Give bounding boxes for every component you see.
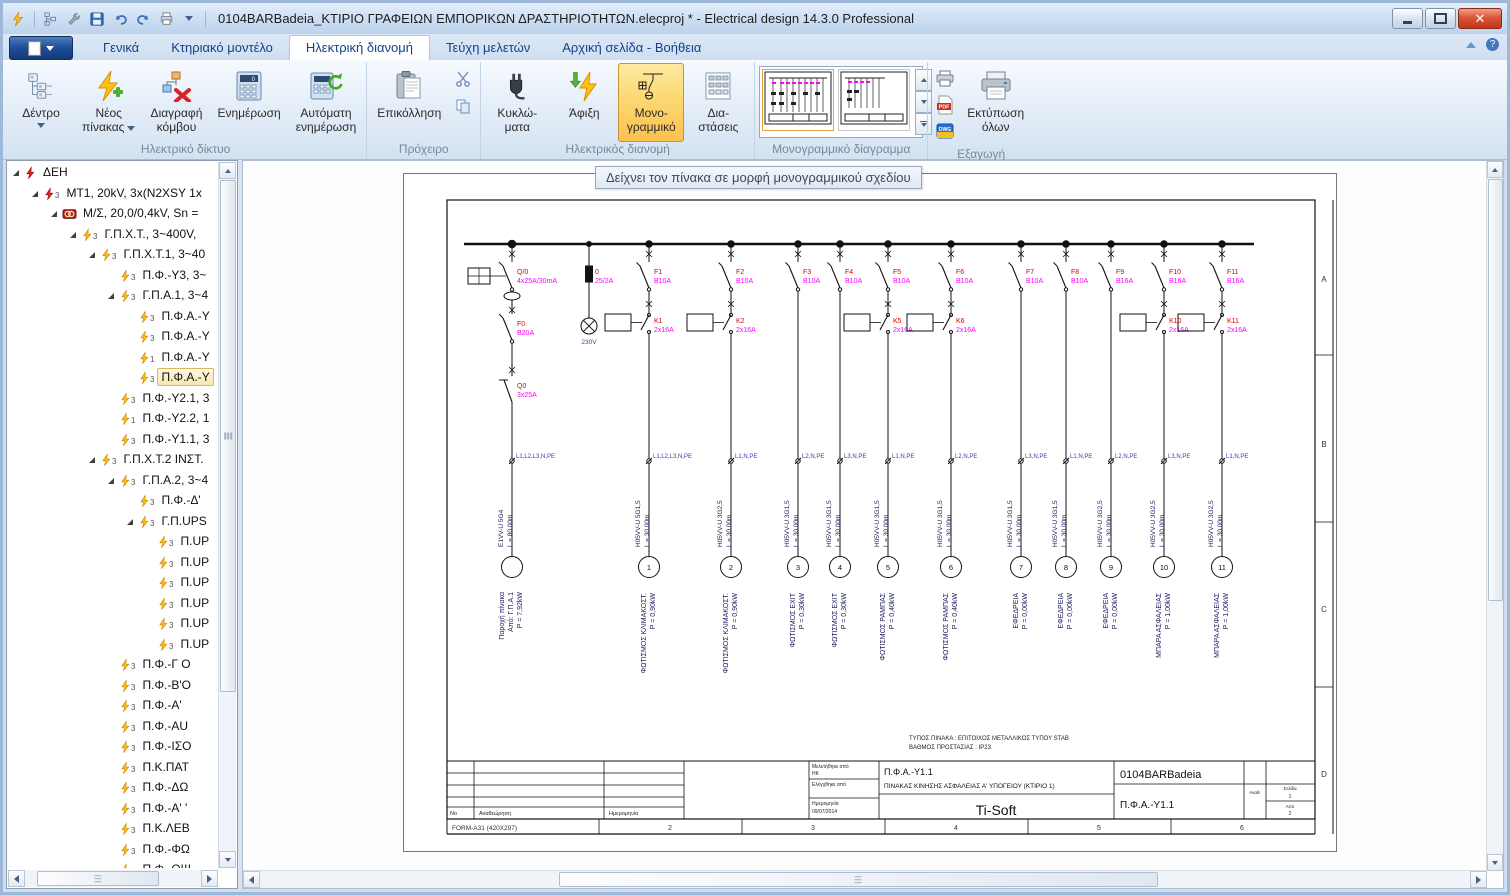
svg-text:11: 11 [1218, 563, 1226, 572]
expand-triangle-icon[interactable] [89, 247, 100, 261]
tree-item-label: Π.Φ.-Α' [138, 696, 185, 714]
tree-item[interactable]: 3Π.Φ.-ΙΣΟ [9, 736, 218, 757]
tree-item-label: Π.Φ.-Υ2.2, 1 [138, 409, 213, 427]
tree-item[interactable]: 3Π.Κ.ΠΑΤ [9, 757, 218, 778]
export-dwg-icon[interactable]: DWG [933, 119, 957, 143]
svg-text:2: 2 [1289, 811, 1292, 817]
bolt-yellow-icon: 3 [138, 371, 155, 385]
svg-text:L1,N,PE: L1,N,PE [735, 454, 757, 460]
svg-text:Ti-Soft: Ti-Soft [976, 802, 1017, 818]
tree-item[interactable]: 3Π.Φ.-ΟΨ [9, 859, 218, 868]
tree-item-label: Π.Κ.ΛΕΒ [138, 819, 193, 837]
bolt-yellow-icon: 3 [119, 720, 136, 734]
save-icon[interactable] [88, 10, 106, 28]
new-panel-button[interactable]: Νέοςπίνακας [75, 63, 142, 142]
svg-text:F2: F2 [736, 269, 744, 276]
svg-text:L1,N,PE: L1,N,PE [1226, 454, 1248, 460]
svg-text:P = 0,30kW: P = 0,30kW [799, 593, 806, 630]
svg-text:P = 7,92kW: P = 7,92kW [517, 592, 524, 629]
divider [205, 11, 206, 27]
expand-triangle-icon[interactable] [108, 473, 119, 487]
tree-button[interactable]: Δέντρο [8, 63, 74, 142]
minimize-button[interactable] [1392, 8, 1423, 29]
svg-text:2x16A: 2x16A [1227, 327, 1247, 334]
svg-text:H05VV-U 3G1,5: H05VV-U 3G1,5 [784, 500, 791, 547]
tree-item[interactable]: 3Γ.Π.Α.2, 3~4 [9, 470, 218, 491]
svg-text:K2: K2 [736, 318, 745, 325]
svg-text:L = 30,00m: L = 30,00m [946, 515, 953, 547]
tree-item[interactable]: 3Π.Κ.ΛΕΒ [9, 818, 218, 839]
svg-text:B16A: B16A [1227, 278, 1244, 285]
tree-item[interactable]: 3Π.Φ.-Α' [9, 695, 218, 716]
tree-icon[interactable] [42, 10, 60, 28]
svg-text:Ημερομηνία: Ημερομηνία [609, 811, 639, 817]
paste-button[interactable]: Επικόλληση [370, 63, 448, 142]
single-line-diagram: ABCDFORM-A31 (420X297)23456ΤΥΠΟΣ ΠΙΝΑΚΑ … [404, 174, 1334, 849]
bolt-yellow-icon: 3 [119, 863, 136, 868]
tree-item[interactable]: 3Π.UP [9, 634, 218, 655]
main-area: ΔΕΗ3MT1, 20kV, 3x(N2XSY 1xΜ/Σ, 20,0/0,4k… [6, 160, 1504, 889]
bolt-yellow-icon: 3 [119, 474, 136, 488]
svg-text:10: 10 [1160, 563, 1168, 572]
svg-text:0104BARBadeia: 0104BARBadeia [1120, 769, 1202, 781]
svg-text:B20A: B20A [517, 330, 534, 337]
svg-text:ΜΠΑΡΑ ΑΣΦΑΛΕΙΑΣ: ΜΠΑΡΑ ΑΣΦΑΛΕΙΑΣ [1214, 592, 1221, 658]
svg-text:F9: F9 [1116, 269, 1124, 276]
tree-item[interactable]: 3Π.Φ.Α.-Υ [9, 306, 218, 327]
plug-icon [502, 68, 532, 104]
canvas-vertical-scrollbar[interactable] [1486, 161, 1503, 871]
svg-text:P = 0,90kW: P = 0,90kW [732, 593, 739, 630]
diagram-gallery [759, 66, 923, 138]
svg-text:Π.Φ.Α.-Υ1.1: Π.Φ.Α.-Υ1.1 [884, 767, 933, 777]
svg-text:L = 30,00m: L = 30,00m [1106, 515, 1113, 547]
svg-text:L = 30,00m: L = 30,00m [644, 515, 651, 547]
tree-item-label: Π.UP [176, 573, 213, 591]
tree-item-label: Π.UP [176, 553, 213, 571]
bolt-yellow-icon: 3 [119, 699, 136, 713]
tree-item[interactable]: 1Π.Φ.Α.-Υ [9, 347, 218, 368]
clipboard-icon [394, 68, 424, 104]
app-icon [9, 10, 27, 28]
new-panel-bolt-icon [93, 68, 125, 104]
group-electric-distribution: Κυκλώ-ματα Άφιξη Μονο-γραμμικό Δια-στάσε… [480, 62, 754, 159]
bolt-yellow-icon: 3 [157, 576, 174, 590]
svg-text:F6: F6 [956, 269, 964, 276]
tree-item[interactable]: 3Π.Φ.-Υ3, 3~ [9, 265, 218, 286]
network-tree: ΔΕΗ3MT1, 20kV, 3x(N2XSY 1xΜ/Σ, 20,0/0,4k… [9, 162, 218, 868]
close-icon: ✕ [1475, 12, 1486, 25]
group-export: PDF DWG Εκτύπωσηόλων Εξαγωγή [927, 62, 1034, 159]
svg-text:Ημερομηνία: Ημερομηνία [812, 801, 839, 807]
help-icon[interactable]: ? [1486, 38, 1499, 51]
maximize-icon [1434, 13, 1447, 24]
tree-item[interactable]: 3Π.Φ.-Β'Ο [9, 675, 218, 696]
svg-text:Παροχή πίνακα: Παροχή πίνακα [498, 592, 506, 640]
single-line-button[interactable]: Μονο-γραμμικό [618, 63, 684, 142]
svg-text:H05VV-U 3G1,5: H05VV-U 3G1,5 [937, 500, 944, 547]
tree-item-label: Γ.Π.UPS [157, 512, 210, 530]
canvas-horizontal-scrollbar[interactable] [243, 870, 1487, 888]
svg-text:L = 30,00m: L = 30,00m [883, 515, 890, 547]
tree-item-label: Π.UP [176, 614, 213, 632]
group-label: Ηλεκτρικός διανομή [484, 142, 751, 159]
redo-icon[interactable] [134, 10, 152, 28]
tree-item[interactable]: Μ/Σ, 20,0/0,4kV, Sn = [9, 203, 218, 224]
group-label: Ηλεκτρικό δίκτυο [8, 142, 363, 159]
ribbon-tab-row: Γενικά Κτηριακό μοντέλο Ηλεκτρική διανομ… [3, 34, 1507, 60]
tree-item[interactable]: 3Γ.Π.Α.1, 3~4 [9, 285, 218, 306]
tree-item[interactable]: 3Γ.Π.Χ.Τ.2 ΙΝΣΤ. [9, 449, 218, 470]
svg-text:B10A: B10A [803, 278, 820, 285]
svg-text:P = 1,00kW: P = 1,00kW [1223, 593, 1230, 630]
maximize-button[interactable] [1425, 8, 1456, 29]
svg-text:P = 0,00kW: P = 0,00kW [1067, 593, 1074, 630]
tree-item[interactable]: 3Π.Φ.-Υ2.1, 3 [9, 388, 218, 409]
tree-item[interactable]: ΔΕΗ [9, 162, 218, 183]
svg-text:2: 2 [668, 825, 672, 832]
svg-text:B10A: B10A [736, 278, 753, 285]
svg-text:7: 7 [1019, 563, 1023, 572]
bolt-red-icon: 3 [43, 187, 60, 201]
svg-text:Από: Από [1286, 803, 1295, 809]
svg-text:L = 30,00m: L = 30,00m [1016, 515, 1023, 547]
tree-item[interactable]: 3Π.Φ.Α.-Υ [9, 367, 218, 388]
svg-text:F3: F3 [803, 269, 811, 276]
window-title: 0104BARBadeia_ΚΤΙΡΙΟ ΓΡΑΦΕΙΩΝ ΕΜΠΟΡΙΚΩΝ … [218, 11, 914, 26]
svg-text:2x16A: 2x16A [654, 327, 674, 334]
svg-text:ΦΩΤΙΣΜΟΣ ΚΛΙΜΑΚΟΣΤ.: ΦΩΤΙΣΜΟΣ ΚΛΙΜΑΚΟΣΤ. [641, 593, 648, 673]
dimensions-button[interactable]: Δια-στάσεις [685, 63, 751, 142]
auto-update-button[interactable]: Αυτόματηενημέρωση [289, 63, 364, 142]
print-small-icon[interactable] [933, 67, 957, 91]
bolt-yellow-icon: 3 [157, 535, 174, 549]
svg-text:25/2A: 25/2A [595, 278, 614, 285]
tree-item-label: MT1, 20kV, 3x(N2XSY 1x [62, 184, 205, 202]
tree-item[interactable]: 3Π.Φ.-ΦΩ [9, 839, 218, 860]
tab-ktiriako-montelo[interactable]: Κτηριακό μοντέλο [155, 36, 289, 60]
calculator-refresh-icon [309, 68, 343, 104]
tree-item-label: Π.Φ.Α.-Υ [157, 368, 213, 386]
calculator-icon: 0 [234, 68, 264, 104]
svg-text:F8: F8 [1071, 269, 1079, 276]
svg-text:DWG: DWG [939, 127, 951, 133]
tree-item-label: Π.Φ.-ΔΩ [138, 778, 192, 796]
tree-item[interactable]: 3Π.UP [9, 572, 218, 593]
svg-text:H05VV-U 3G1,5: H05VV-U 3G1,5 [1052, 500, 1059, 547]
svg-text:230V: 230V [581, 339, 597, 346]
tree-item-label: Γ.Π.Α.1, 3~4 [138, 286, 212, 304]
svg-text:L3,N,PE: L3,N,PE [844, 454, 866, 460]
chevron-down-icon [127, 126, 135, 131]
svg-text:ΕΦΕΔΡΕΙΑ: ΕΦΕΔΡΕΙΑ [1013, 593, 1020, 629]
divider [34, 11, 35, 27]
qat-dropdown-icon[interactable] [180, 10, 198, 28]
svg-text:K6: K6 [956, 318, 965, 325]
svg-text:4: 4 [954, 825, 958, 832]
expand-triangle-icon[interactable] [108, 288, 119, 302]
svg-text:Σελίδα: Σελίδα [1283, 786, 1297, 791]
tree-item[interactable]: 3Π.Φ.-Γ Ο [9, 654, 218, 675]
bolt-yellow-icon: 3 [119, 433, 136, 447]
svg-text:Π.Φ.Α.-Υ1.1: Π.Φ.Α.-Υ1.1 [1120, 800, 1175, 811]
tree-item-label: Γ.Π.Χ.Τ.2 ΙΝΣΤ. [119, 450, 207, 468]
tooltip: Δείχνει τον πίνακα σε μορφή μονογραμμικο… [595, 166, 922, 189]
tree-item[interactable]: 3Γ.Π.Χ.Τ., 3~400V, [9, 224, 218, 245]
svg-text:H05VV-U 3G1,5: H05VV-U 3G1,5 [874, 500, 881, 547]
svg-text:H05VV-U 3G2,5: H05VV-U 3G2,5 [717, 500, 724, 547]
svg-text:4x25A/30mA: 4x25A/30mA [517, 278, 557, 285]
svg-text:F7: F7 [1026, 269, 1034, 276]
drawing-canvas: Δείχνει τον πίνακα σε μορφή μονογραμμικο… [242, 160, 1504, 889]
quick-access-toolbar [9, 10, 208, 28]
tab-ilektriki-dianomi[interactable]: Ηλεκτρική διανομή [289, 35, 430, 60]
svg-text:ΠΙΝΑΚΑΣ ΚΙΝΗΣΗΣ ΑΣΦΑΛΕΙΑΣ Α' Υ: ΠΙΝΑΚΑΣ ΚΙΝΗΣΗΣ ΑΣΦΑΛΕΙΑΣ Α' ΥΠΟΓΕΙΟΥ (Κ… [884, 783, 1055, 790]
svg-text:P = 0,40kW: P = 0,40kW [952, 593, 959, 630]
tree-item[interactable]: 3Γ.Π.Χ.Τ.1, 3~40 [9, 244, 218, 265]
diagram-thumbnail-1[interactable] [762, 69, 834, 131]
expand-triangle-icon[interactable] [51, 206, 62, 220]
settings-wrench-icon[interactable] [65, 10, 83, 28]
tab-row-right: ? [1466, 38, 1499, 51]
svg-text:L1,N,PE: L1,N,PE [1070, 454, 1092, 460]
bolt-yellow-icon: 3 [138, 515, 155, 529]
svg-text:No: No [450, 811, 457, 817]
window-controls: ✕ [1390, 8, 1502, 29]
tree-item-label: Π.Φ.-AU [138, 717, 192, 735]
export-pdf-icon[interactable]: PDF [933, 93, 957, 117]
tree-item-label: Π.Φ.-Β'Ο [138, 676, 195, 694]
bolt-red-icon [24, 166, 37, 180]
svg-text:E1VV-U 5G4: E1VV-U 5G4 [498, 509, 505, 547]
svg-text:L = 30,00m: L = 30,00m [835, 515, 842, 547]
tree-item[interactable]: 3Π.UP [9, 613, 218, 634]
application-menu-icon [28, 41, 41, 56]
print-icon[interactable] [157, 10, 175, 28]
svg-text:B10A: B10A [1026, 278, 1043, 285]
tree-item-label: Π.Φ.Α.-Υ [157, 327, 213, 345]
tree-item-label: Π.Φ.-ΟΨ [138, 860, 194, 868]
svg-text:09/07/2014: 09/07/2014 [812, 809, 837, 815]
tree-horizontal-scrollbar[interactable] [8, 870, 218, 887]
svg-text:L1,N,PE: L1,N,PE [892, 454, 914, 460]
tree-diagram-icon [26, 68, 56, 104]
bolt-yellow-icon: 3 [119, 802, 136, 816]
tree-item[interactable]: 3Π.Φ.-Υ1.1, 3 [9, 429, 218, 450]
expand-triangle-icon[interactable] [127, 514, 138, 528]
bolt-yellow-icon: 3 [157, 556, 174, 570]
copy-icon[interactable] [451, 94, 475, 118]
bolt-yellow-icon: 3 [157, 638, 174, 652]
svg-text:2x16A: 2x16A [956, 327, 976, 334]
svg-text:P = 0,00kW: P = 0,00kW [1022, 593, 1029, 630]
tree-item[interactable]: 3Π.UP [9, 552, 218, 573]
svg-text:Αναθεώρηση: Αναθεώρηση [479, 810, 511, 817]
tree-item-label: Π.Κ.ΠΑΤ [138, 758, 192, 776]
svg-text:1: 1 [647, 563, 651, 572]
svg-text:L1,L2,L3,N,PE: L1,L2,L3,N,PE [653, 454, 692, 460]
svg-text:L2,N,PE: L2,N,PE [802, 454, 824, 460]
svg-text:L1,L2,L3,N,PE: L1,L2,L3,N,PE [516, 454, 555, 460]
bolt-yellow-icon: 3 [119, 658, 136, 672]
tree-item-label: Π.Φ.-Α' ' [138, 799, 191, 817]
bolt-yellow-icon: 3 [119, 781, 136, 795]
group-label: Πρόχειρο [370, 142, 477, 159]
printer-icon [979, 68, 1013, 104]
svg-text:ΦΩΤΙΣΜΟΣ ΡΑΜΠΑΣ: ΦΩΤΙΣΜΟΣ ΡΑΜΠΑΣ [880, 592, 887, 660]
update-button[interactable]: 0 Ενημέρωση [210, 63, 287, 142]
tree-item-label: Π.Φ.-Υ2.1, 3 [138, 389, 213, 407]
tree-item[interactable]: 3Π.Φ.-AU [9, 716, 218, 737]
svg-text:L = 30,00m: L = 30,00m [793, 515, 800, 547]
svg-text:L = 30,00m: L = 30,00m [1217, 515, 1224, 547]
svg-text:B16A: B16A [1116, 278, 1133, 285]
tree-item-label: Π.Φ.-ΙΣΟ [138, 737, 195, 755]
tree-item-label: Γ.Π.Α.2, 3~4 [138, 471, 212, 489]
tree-item[interactable]: 3Π.Φ.-Δ' [9, 490, 218, 511]
arrival-button[interactable]: Άφιξη [551, 63, 617, 142]
group-clipboard: Επικόλληση Πρόχειρο [366, 62, 480, 159]
tab-tefxi-meleton[interactable]: Τεύχη μελετών [430, 36, 546, 60]
svg-text:H05VV-U 5G1,5: H05VV-U 5G1,5 [635, 500, 642, 547]
tree-item[interactable]: 3Π.UP [9, 531, 218, 552]
svg-text:F10: F10 [1169, 269, 1181, 276]
tree-item[interactable]: 3Π.Φ.-ΔΩ [9, 777, 218, 798]
tab-arxiki-selida-voithia[interactable]: Αρχική σελίδα - Βοήθεια [546, 36, 717, 60]
app-window: 0104BARBadeia_ΚΤΙΡΙΟ ΓΡΑΦΕΙΩΝ ΕΜΠΟΡΙΚΩΝ … [0, 0, 1510, 895]
svg-text:ΕΦΕΔΡΕΙΑ: ΕΦΕΔΡΕΙΑ [1103, 593, 1110, 629]
tree-item[interactable]: 1Π.Φ.-Υ2.2, 1 [9, 408, 218, 429]
svg-text:ΒΑΘΜΟΣ ΠΡΟΣΤΑΣΙΑΣ : IP23: ΒΑΘΜΟΣ ΠΡΟΣΤΑΣΙΑΣ : IP23 [909, 745, 992, 751]
svg-text:5: 5 [1097, 825, 1101, 832]
expand-triangle-icon[interactable] [13, 165, 24, 179]
tree-item[interactable]: 3Π.Φ.-Α' ' [9, 798, 218, 819]
tree-item-label: Μ/Σ, 20,0/0,4kV, Sn = [79, 204, 202, 222]
bolt-yellow-icon: 3 [119, 392, 136, 406]
circuits-button[interactable]: Κυκλώ-ματα [484, 63, 550, 142]
tree-item[interactable]: 3Π.Φ.Α.-Υ [9, 326, 218, 347]
expand-triangle-icon[interactable] [89, 452, 100, 466]
svg-text:L3,N,PE: L3,N,PE [1025, 454, 1047, 460]
tree-item-label: Π.Φ.-ΦΩ [138, 840, 193, 858]
tree-item-label: Γ.Π.Χ.Τ., 3~400V, [100, 225, 200, 243]
svg-text:ΤΥΠΟΣ ΠΙΝΑΚΑ : ΕΠΙΤΟΙΧΟΣ ΜΕΤΑΛ: ΤΥΠΟΣ ΠΙΝΑΚΑ : ΕΠΙΤΟΙΧΟΣ ΜΕΤΑΛΛΙΚΟΣ ΤΥΠΟ… [909, 736, 1069, 742]
svg-text:6: 6 [949, 563, 953, 572]
bolt-yellow-icon: 3 [157, 597, 174, 611]
tree-item-label: Π.UP [176, 635, 213, 653]
tree-vertical-scrollbar[interactable] [218, 162, 236, 868]
drawing-viewport[interactable]: Δείχνει τον πίνακα σε μορφή μονογραμμικο… [243, 161, 1487, 871]
svg-text:0: 0 [595, 269, 599, 276]
application-menu-button[interactable] [9, 36, 73, 60]
svg-text:L = 30,00m: L = 30,00m [1061, 515, 1068, 547]
expand-triangle-icon[interactable] [70, 227, 81, 241]
bolt-yellow-icon: 3 [157, 617, 174, 631]
svg-text:L = 30,00m: L = 30,00m [1159, 515, 1166, 547]
delete-node-button[interactable]: Διαγραφήκόμβου [143, 63, 209, 142]
svg-text:F5: F5 [893, 269, 901, 276]
svg-text:L = 80,00m: L = 80,00m [507, 515, 514, 547]
svg-text:8: 8 [1064, 563, 1068, 572]
svg-text:H05VV-U 3G2,5: H05VV-U 3G2,5 [1150, 500, 1157, 547]
svg-text:F0: F0 [517, 321, 525, 328]
svg-text:3: 3 [796, 563, 800, 572]
print-all-button[interactable]: Εκτύπωσηόλων [960, 63, 1031, 147]
svg-text:ΕΦΕΔΡΕΙΑ: ΕΦΕΔΡΕΙΑ [1058, 593, 1065, 629]
close-button[interactable]: ✕ [1458, 8, 1502, 29]
undo-icon[interactable] [111, 10, 129, 28]
svg-text:3: 3 [811, 825, 815, 832]
bolt-yellow-icon: 3 [138, 330, 155, 344]
dimensions-table-icon [704, 68, 732, 104]
svg-text:3x25A: 3x25A [517, 392, 537, 399]
svg-text:PDF: PDF [939, 104, 950, 110]
svg-text:K1: K1 [654, 318, 663, 325]
tab-genika[interactable]: Γενικά [87, 36, 155, 60]
svg-text:F1: F1 [654, 269, 662, 276]
tree-item[interactable]: 3Π.UP [9, 593, 218, 614]
bolt-yellow-icon: 1 [119, 412, 136, 426]
bolt-yellow-icon: 3 [100, 453, 117, 467]
svg-text:C: C [1321, 605, 1327, 614]
bolt-yellow-icon: 3 [119, 679, 136, 693]
expand-triangle-icon[interactable] [32, 186, 43, 200]
svg-text:FORM-A31 (420X297): FORM-A31 (420X297) [452, 825, 517, 832]
svg-text:B16A: B16A [1169, 278, 1186, 285]
bolt-yellow-icon: 3 [138, 310, 155, 324]
svg-text:L2,N,PE: L2,N,PE [955, 454, 977, 460]
bolt-yellow-icon: 3 [119, 740, 136, 754]
svg-text:ΦΩΤΙΣΜΟΣ ΡΑΜΠΑΣ: ΦΩΤΙΣΜΟΣ ΡΑΜΠΑΣ [943, 592, 950, 660]
chevron-down-icon [46, 46, 54, 51]
ribbon: Δέντρο Νέοςπίνακας Διαγραφήκόμβου 0 [3, 60, 1507, 160]
arrival-bolt-icon [568, 68, 600, 104]
svg-text:K5: K5 [893, 318, 902, 325]
collapse-ribbon-icon[interactable] [1466, 42, 1476, 48]
svg-text:ΦΩΤΙΣΜΟΣ EXIT: ΦΩΤΙΣΜΟΣ EXIT [832, 592, 839, 647]
single-line-diagram-icon [635, 68, 667, 104]
svg-text:B: B [1321, 440, 1326, 449]
tree-item-label: Π.Φ.Α.-Υ [157, 348, 213, 366]
svg-text:4: 4 [838, 563, 842, 572]
bolt-yellow-icon: 1 [138, 351, 155, 365]
diagram-thumbnail-2[interactable] [838, 69, 910, 131]
tree-item-label: Π.Φ.-Δ' [157, 491, 204, 509]
tree-item-label: Π.UP [176, 532, 213, 550]
bolt-yellow-icon: 3 [119, 289, 136, 303]
group-single-line-gallery: Μονογραμμικό δίαγραμμα [754, 62, 927, 159]
drawing-page[interactable]: ABCDFORM-A31 (420X297)23456ΤΥΠΟΣ ΠΙΝΑΚΑ … [403, 173, 1337, 852]
svg-text:Μελετήθηκε από: Μελετήθηκε από [812, 763, 849, 770]
svg-text:F4: F4 [845, 269, 853, 276]
svg-text:P = 0,90kW: P = 0,90kW [650, 593, 657, 630]
svg-text:F11: F11 [1227, 269, 1239, 276]
tree-item-label: Π.Φ.-Υ1.1, 3 [138, 430, 213, 448]
cut-scissors-icon[interactable] [451, 67, 475, 91]
svg-text:H05VV-U 3G2,5: H05VV-U 3G2,5 [1208, 500, 1215, 547]
bolt-yellow-icon: 3 [119, 761, 136, 775]
svg-text:B10A: B10A [893, 278, 910, 285]
svg-text:9: 9 [1109, 563, 1113, 572]
tree-item[interactable]: 3MT1, 20kV, 3x(N2XSY 1x [9, 183, 218, 204]
svg-text:5: 5 [886, 563, 890, 572]
tree-item[interactable]: 3Γ.Π.UPS [9, 511, 218, 532]
bolt-yellow-icon: 3 [119, 822, 136, 836]
svg-text:ΦΩΤΙΣΜΟΣ ΚΛΙΜΑΚΟΣΤ.: ΦΩΤΙΣΜΟΣ ΚΛΙΜΑΚΟΣΤ. [723, 593, 730, 673]
tree-item-label: Π.Φ.Α.-Υ [157, 307, 213, 325]
svg-text:Q0: Q0 [517, 383, 526, 390]
svg-text:L = 30,00m: L = 30,00m [726, 515, 733, 547]
